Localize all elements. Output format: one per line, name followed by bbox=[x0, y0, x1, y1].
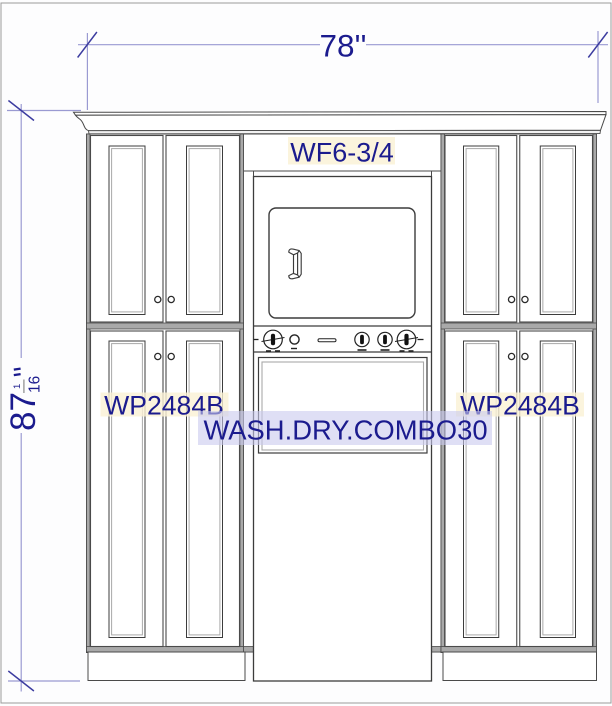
svg-text:1: 1 bbox=[12, 384, 23, 389]
svg-text:WASH.DRY.COMBO30: WASH.DRY.COMBO30 bbox=[203, 415, 487, 446]
svg-text:WF6-3/4: WF6-3/4 bbox=[290, 137, 394, 167]
svg-text:87: 87 bbox=[4, 392, 43, 431]
svg-text:16: 16 bbox=[27, 376, 44, 393]
svg-text:78'': 78'' bbox=[319, 28, 366, 64]
